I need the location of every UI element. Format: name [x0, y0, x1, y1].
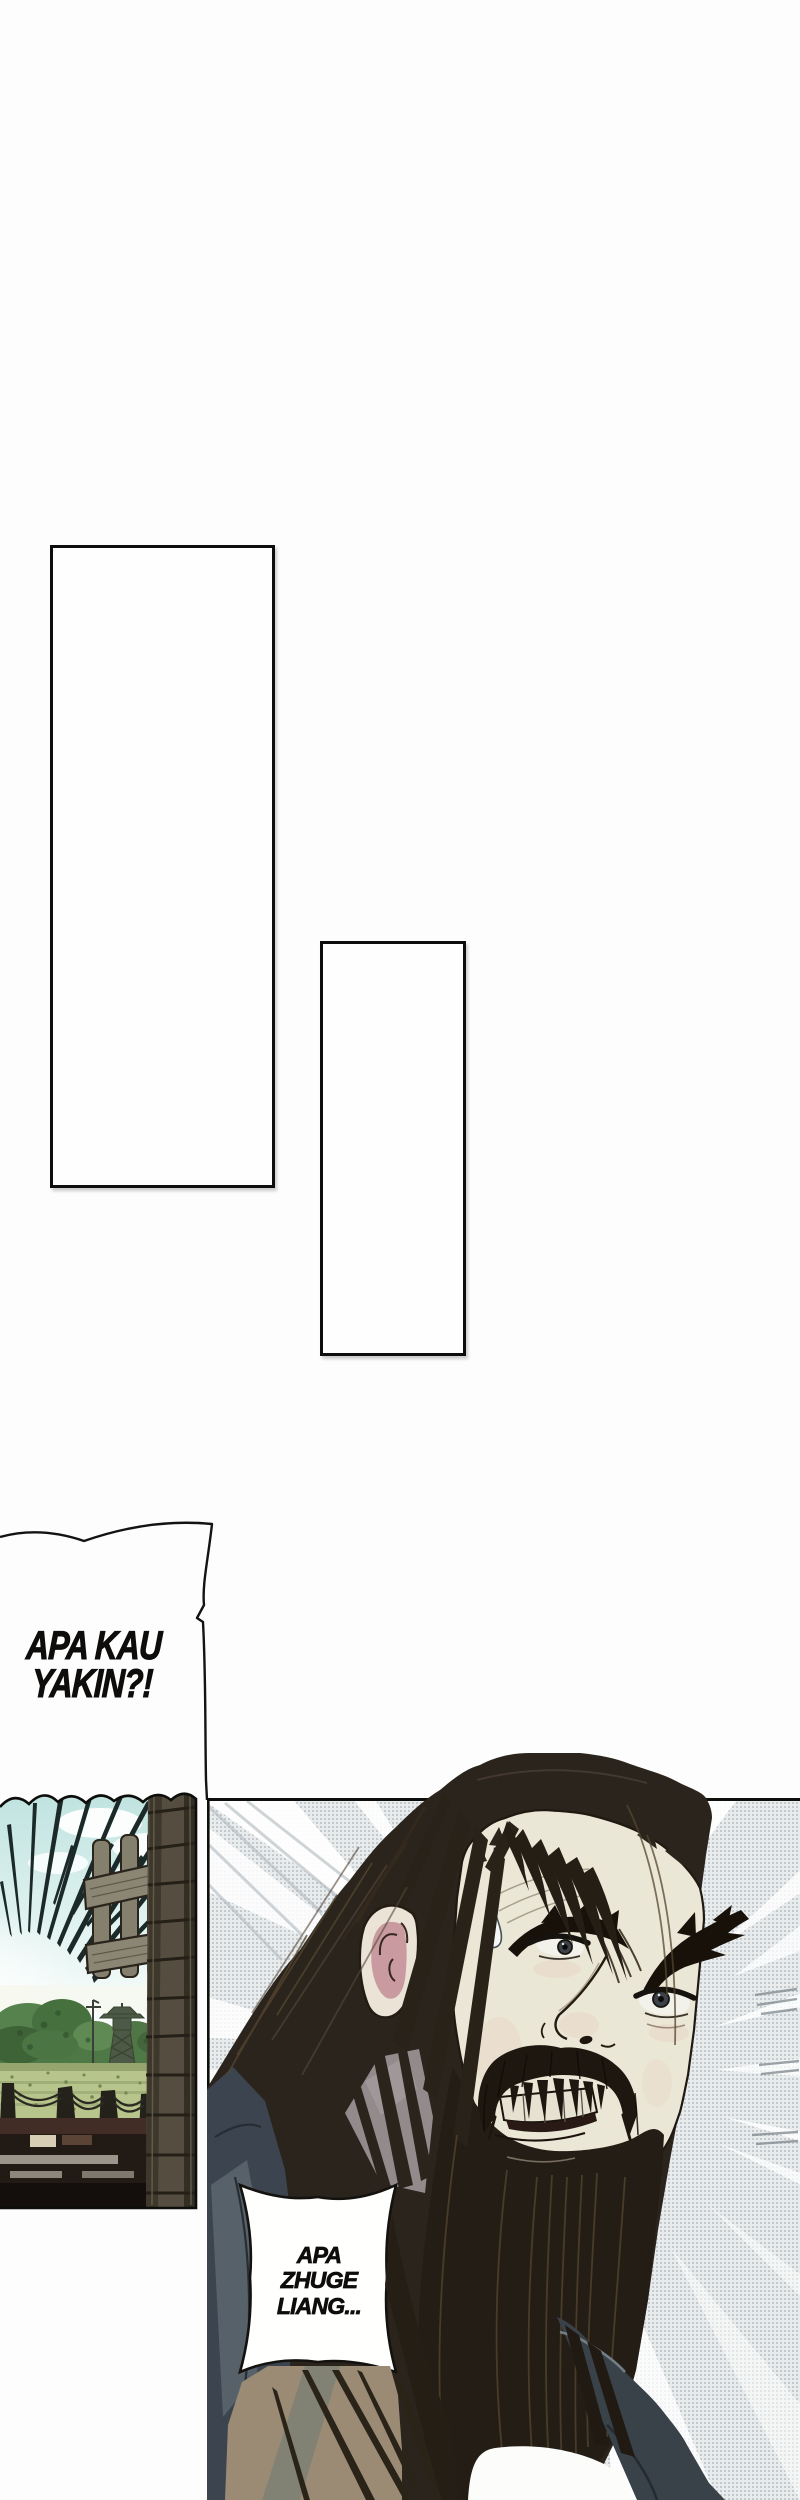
- svg-text:ZHUGE: ZHUGE: [280, 2267, 359, 2293]
- svg-text:APA: APA: [296, 2242, 341, 2268]
- svg-text:LIANG...: LIANG...: [277, 2293, 361, 2319]
